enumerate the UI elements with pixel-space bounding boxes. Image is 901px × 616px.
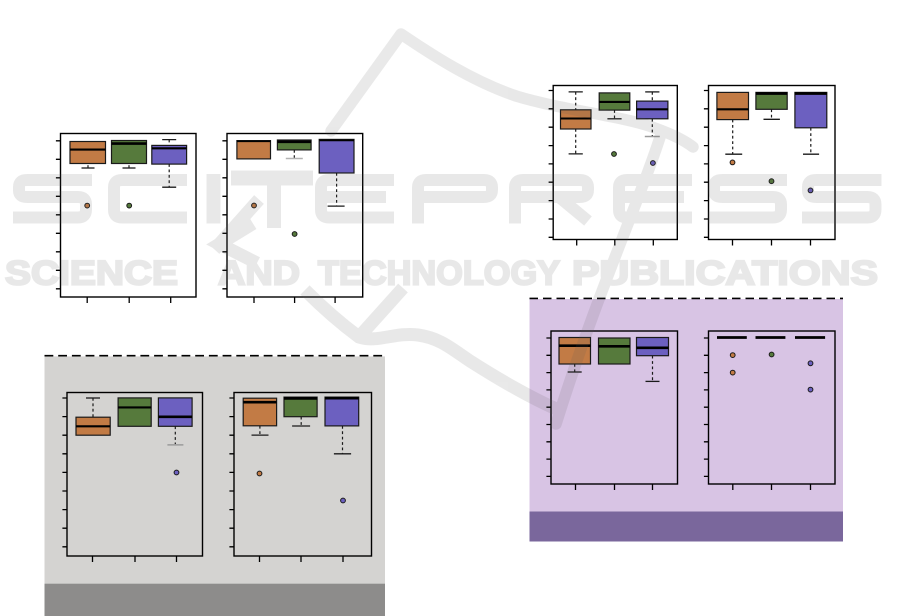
- svg-text:TECHNOLOGY: TECHNOLOGY: [318, 255, 560, 293]
- svg-text:SCIENCE: SCIENCE: [5, 255, 178, 293]
- svg-text:AND: AND: [218, 255, 300, 293]
- svg-text:PUBLICATIONS: PUBLICATIONS: [572, 255, 878, 293]
